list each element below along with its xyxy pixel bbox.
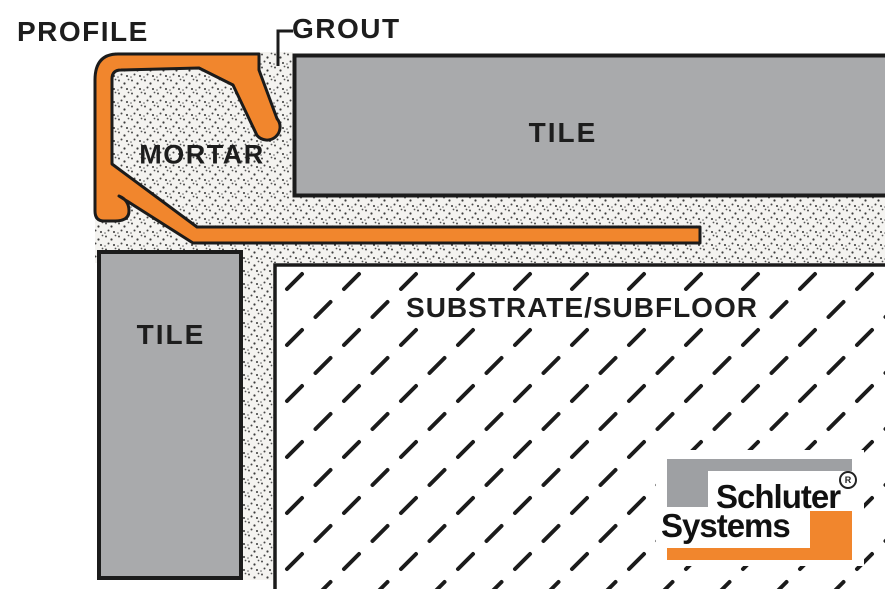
tile-left-shape (99, 252, 241, 578)
tile-top-label: TILE (529, 119, 598, 147)
substrate-label: SUBSTRATE/SUBFLOOR (396, 291, 768, 325)
diagram-canvas: PROFILE GROUT MORTAR TILE TILE SUBSTRATE… (0, 0, 885, 589)
registered-trademark-icon: R (839, 471, 857, 489)
mortar-strip-vertical (243, 250, 274, 580)
mortar-label: MORTAR (139, 142, 264, 169)
profile-label: PROFILE (17, 18, 149, 46)
tile-left-label: TILE (137, 321, 206, 349)
logo-wordmark-line2: Systems (661, 509, 790, 542)
grout-label: GROUT (292, 15, 401, 43)
